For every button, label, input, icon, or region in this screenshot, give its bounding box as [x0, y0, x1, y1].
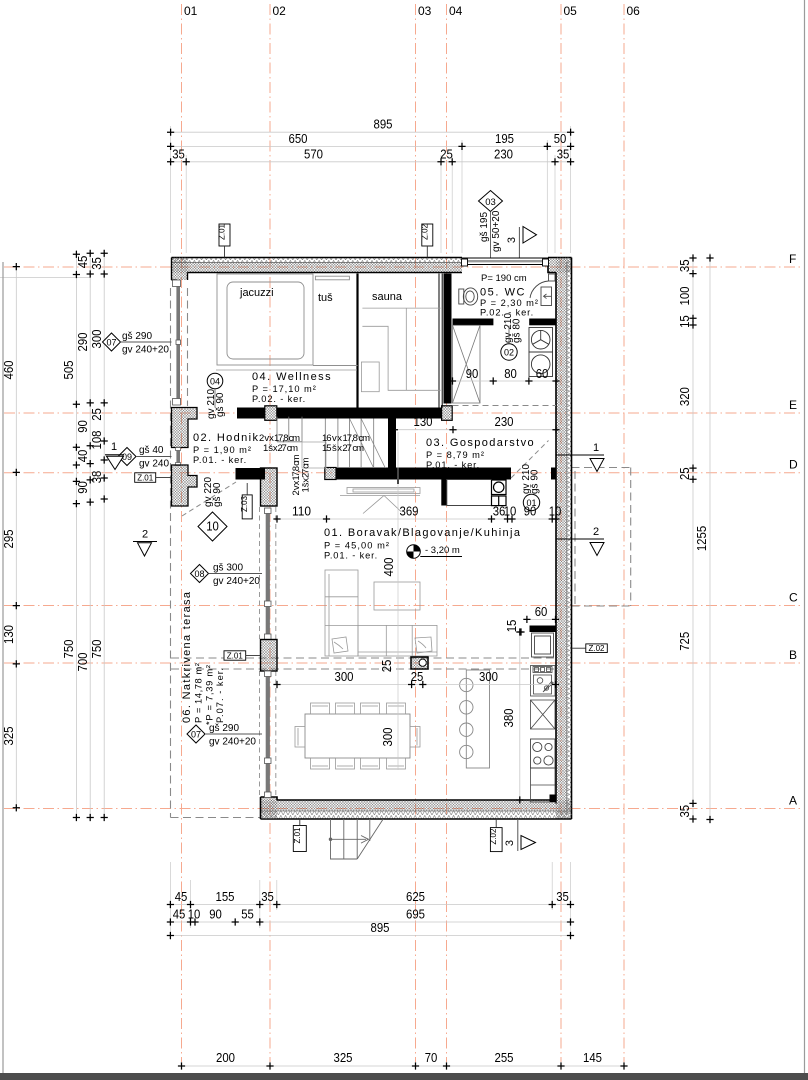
svg-text:08: 08 [194, 569, 204, 579]
svg-text:05. WC: 05. WC [480, 287, 525, 299]
svg-text:03. Gospodarstvo: 03. Gospodarstvo [426, 437, 534, 449]
svg-text:Z.03: Z.03 [240, 495, 249, 512]
svg-text:369: 369 [400, 504, 419, 519]
svg-text:Z.02: Z.02 [489, 828, 498, 845]
svg-text:P= 190 cm: P= 190 cm [481, 273, 527, 284]
svg-text:Z.02: Z.02 [588, 644, 605, 653]
svg-text:25: 25 [440, 146, 453, 161]
svg-text:P = 2,30 m²: P = 2,30 m² [480, 298, 538, 308]
svg-text:gv 240+20: gv 240+20 [122, 345, 169, 356]
svg-text:05: 05 [564, 4, 578, 18]
svg-text:145: 145 [583, 1050, 602, 1065]
svg-text:38: 38 [89, 471, 104, 484]
svg-text:400: 400 [381, 558, 396, 577]
svg-text:320: 320 [677, 387, 692, 406]
svg-text:895: 895 [371, 920, 390, 935]
svg-text:25: 25 [89, 408, 104, 421]
svg-text:750: 750 [89, 640, 104, 659]
svg-text:Z.02: Z.02 [420, 223, 429, 240]
svg-text:gš 290: gš 290 [122, 331, 152, 342]
svg-text:750: 750 [61, 640, 76, 659]
svg-text:25: 25 [379, 660, 394, 673]
svg-text:1: 1 [593, 442, 599, 454]
svg-text:230: 230 [495, 414, 514, 429]
svg-text:Z.01: Z.01 [293, 827, 302, 844]
svg-text:P = 14,78 m²: P = 14,78 m² [194, 663, 204, 723]
svg-text:01. Boravak/Blagovanje/Kuhinja: 01. Boravak/Blagovanje/Kuhinja [324, 527, 521, 539]
svg-text:gš 90: gš 90 [215, 392, 226, 417]
svg-text:15: 15 [504, 620, 519, 633]
svg-text:15 š x 27 cm: 15 š x 27 cm [322, 443, 364, 454]
svg-text:D: D [789, 458, 798, 472]
svg-text:100: 100 [677, 287, 692, 306]
svg-text:P = 45,00 m²: P = 45,00 m² [324, 541, 389, 551]
svg-text:1 š x 27 cm: 1 š x 27 cm [263, 443, 298, 454]
svg-text:60: 60 [535, 604, 548, 619]
svg-text:gš 290: gš 290 [209, 723, 239, 734]
svg-text:700: 700 [75, 653, 90, 672]
svg-text:02: 02 [504, 348, 514, 358]
svg-text:300: 300 [89, 330, 104, 349]
svg-text:A: A [789, 794, 797, 808]
svg-text:300: 300 [335, 669, 354, 684]
svg-text:F: F [789, 252, 796, 266]
svg-text:40: 40 [75, 450, 90, 463]
svg-text:155: 155 [216, 889, 235, 904]
svg-text:90: 90 [524, 504, 537, 519]
svg-text:90: 90 [209, 907, 222, 922]
svg-text:3: 3 [504, 840, 516, 846]
svg-text:gš 90: gš 90 [212, 482, 223, 507]
svg-text:505: 505 [61, 361, 76, 380]
svg-text:1255: 1255 [694, 526, 709, 551]
svg-text:35: 35 [557, 146, 570, 161]
svg-text:45: 45 [75, 256, 90, 269]
svg-text:10: 10 [206, 519, 219, 534]
svg-text:300: 300 [479, 669, 498, 684]
svg-text:P.01. - ker.: P.01. - ker. [324, 551, 377, 561]
svg-text:325: 325 [334, 1050, 353, 1065]
svg-text:gš 40: gš 40 [139, 445, 164, 456]
svg-text:gv 240+20: gv 240+20 [209, 737, 256, 748]
svg-text:*P = 7,39 m²: *P = 7,39 m² [205, 665, 215, 725]
svg-text:35: 35 [172, 146, 185, 161]
svg-text:90: 90 [466, 366, 479, 381]
svg-text:03: 03 [485, 197, 496, 208]
svg-text:gv 50+20: gv 50+20 [491, 210, 502, 252]
svg-text:108: 108 [89, 431, 104, 450]
svg-text:110: 110 [292, 504, 311, 519]
svg-text:gš 195: gš 195 [479, 212, 490, 242]
svg-text:1 š x 27 cm: 1 š x 27 cm [301, 457, 312, 492]
svg-text:E: E [789, 398, 797, 412]
svg-text:Z.01: Z.01 [218, 223, 227, 240]
svg-text:90: 90 [75, 481, 90, 494]
svg-text:45: 45 [175, 889, 188, 904]
svg-text:07: 07 [191, 730, 201, 740]
svg-text:570: 570 [304, 146, 323, 161]
svg-text:55: 55 [241, 907, 254, 922]
svg-text:P.01. - ker.: P.01. - ker. [426, 460, 479, 470]
svg-text:P = 8,79 m²: P = 8,79 m² [426, 450, 484, 460]
svg-text:04: 04 [449, 4, 463, 18]
svg-text:P.07. - ker.: P.07. - ker. [215, 668, 225, 723]
svg-text:02. Hodnik: 02. Hodnik [193, 432, 259, 444]
svg-text:02: 02 [273, 4, 287, 18]
svg-text:10: 10 [504, 504, 517, 519]
svg-text:380: 380 [501, 709, 516, 728]
svg-text:07: 07 [106, 338, 116, 348]
svg-text:50: 50 [554, 131, 567, 146]
svg-text:1: 1 [111, 441, 117, 453]
svg-text:35: 35 [261, 889, 274, 904]
svg-text:jacuzzi: jacuzzi [239, 287, 274, 299]
svg-text:03: 03 [418, 4, 432, 18]
svg-text:725: 725 [677, 632, 692, 651]
svg-text:04: 04 [210, 377, 220, 387]
svg-text:04. Wellness: 04. Wellness [252, 371, 331, 383]
svg-text:25: 25 [677, 467, 692, 480]
svg-text:- 3,20 m: - 3,20 m [425, 545, 460, 556]
svg-text:695: 695 [406, 907, 425, 922]
svg-text:35: 35 [89, 257, 104, 270]
svg-text:Z.01: Z.01 [137, 474, 154, 483]
svg-text:C: C [789, 591, 798, 605]
svg-text:gš 90: gš 90 [530, 469, 541, 494]
svg-text:B: B [789, 648, 797, 662]
svg-text:895: 895 [374, 117, 393, 132]
svg-text:650: 650 [289, 131, 308, 146]
svg-text:P = 1,90 m²: P = 1,90 m² [193, 445, 251, 455]
svg-text:P = 17,10 m²: P = 17,10 m² [252, 384, 316, 394]
svg-text:35: 35 [556, 889, 569, 904]
svg-text:80: 80 [504, 366, 517, 381]
svg-text:90: 90 [75, 420, 90, 433]
svg-text:45: 45 [173, 907, 186, 922]
svg-text:gv 240: gv 240 [139, 459, 169, 470]
svg-text:sauna: sauna [372, 291, 403, 303]
svg-text:15: 15 [677, 315, 692, 328]
svg-text:230: 230 [494, 146, 513, 161]
svg-text:10: 10 [549, 504, 562, 519]
svg-text:200: 200 [216, 1050, 235, 1065]
svg-text:P.02. - ker.: P.02. - ker. [252, 394, 305, 404]
svg-text:3: 3 [506, 237, 518, 243]
svg-text:gš 80: gš 80 [512, 318, 523, 343]
svg-text:35: 35 [677, 260, 692, 273]
svg-text:2: 2 [142, 529, 148, 541]
svg-text:255: 255 [495, 1050, 514, 1065]
svg-text:01: 01 [184, 4, 198, 18]
svg-text:35: 35 [677, 805, 692, 818]
svg-text:tuš: tuš [318, 292, 333, 304]
svg-text:625: 625 [406, 889, 425, 904]
svg-text:195: 195 [495, 131, 514, 146]
svg-text:gš 300: gš 300 [213, 563, 243, 574]
svg-text:130: 130 [414, 414, 433, 429]
svg-text:70: 70 [425, 1050, 438, 1065]
svg-text:06: 06 [627, 4, 641, 18]
svg-text:300: 300 [380, 728, 395, 747]
svg-text:P.01. - ker.: P.01. - ker. [193, 455, 246, 465]
svg-text:gv 240+20: gv 240+20 [213, 576, 260, 587]
svg-text:25: 25 [411, 669, 424, 684]
svg-text:06. Natkrivena terasa: 06. Natkrivena terasa [181, 591, 193, 723]
svg-text:2: 2 [593, 526, 599, 538]
svg-text:290: 290 [75, 333, 90, 352]
svg-text:60: 60 [536, 366, 549, 381]
svg-text:Z.01: Z.01 [227, 651, 244, 660]
svg-text:10: 10 [188, 907, 201, 922]
